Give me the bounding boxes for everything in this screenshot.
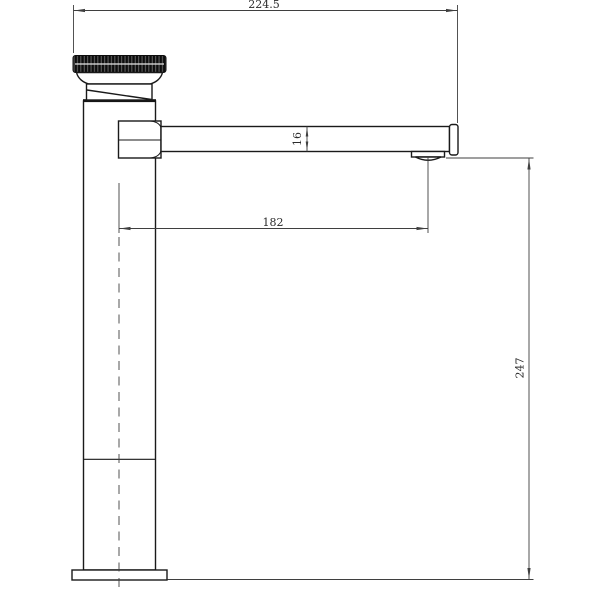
spout-reach-label: 182 (263, 216, 284, 229)
spout-arm-outline (161, 127, 450, 152)
arrowhead-down-icon (527, 568, 530, 579)
dimension-spout-reach: 182 (119, 157, 428, 592)
drawing-canvas: 224.5 16 182 247 (0, 0, 600, 600)
overall-width-label: 224.5 (248, 0, 280, 11)
dimension-overall-height: 247 (168, 158, 534, 580)
arrowhead-left-icon (74, 9, 85, 12)
faucet-technical-drawing: 224.5 16 182 247 (0, 0, 600, 600)
base-flange (72, 570, 167, 580)
spout-arm (161, 125, 458, 156)
column-outline (84, 101, 156, 570)
overall-height-label: 247 (514, 358, 527, 379)
handle-knob (73, 56, 166, 101)
aerator-ring (412, 152, 445, 158)
faucet-body-column (83, 99, 156, 570)
spout-height-label: 16 (291, 132, 304, 146)
arrowhead-right-icon (446, 9, 457, 12)
base-outline (72, 570, 167, 580)
handle-bell (77, 73, 163, 85)
spout-end-cap (450, 125, 459, 156)
arrowhead-up-icon (527, 159, 530, 170)
arrowhead-right-icon (417, 227, 428, 230)
spout-connector (119, 121, 162, 158)
